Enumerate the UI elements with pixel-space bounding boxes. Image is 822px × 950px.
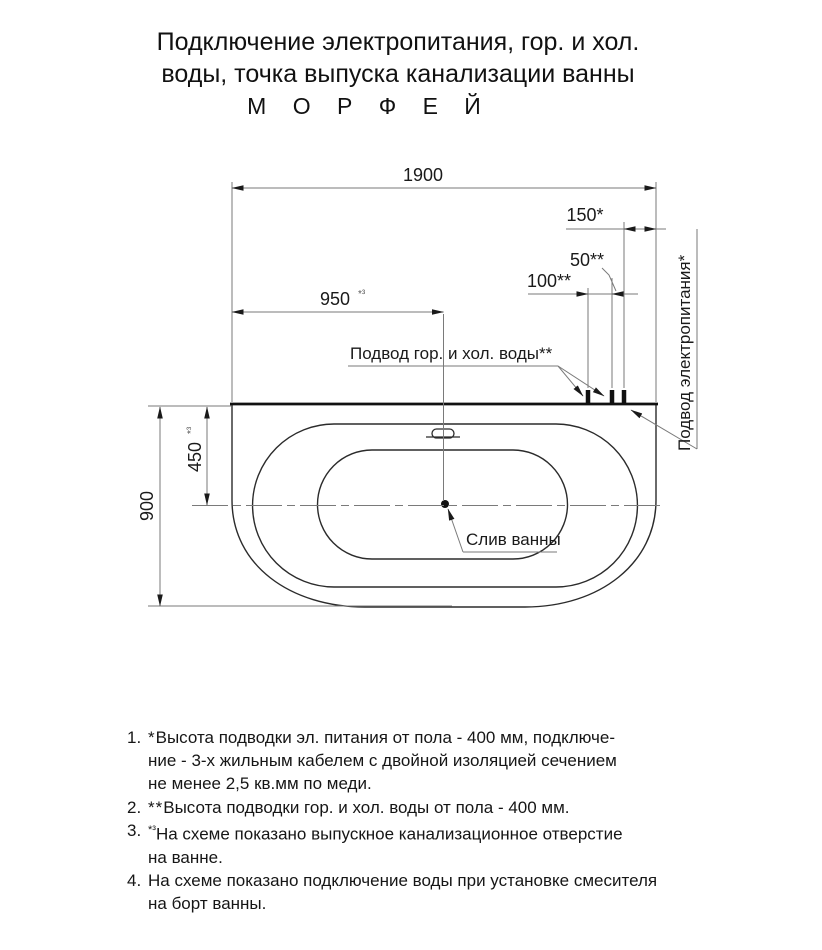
footnote-number: 1. <box>127 726 148 796</box>
drain-label: Слив ванны <box>466 530 561 549</box>
dim-1900-value: 1900 <box>403 165 443 185</box>
footnote-1: 1. *Высота подводки эл. питания от пола … <box>127 726 707 796</box>
drawing-page: Подключение электропитания, гор. и хол. … <box>0 0 822 950</box>
dim-1900: 1900 <box>232 165 656 188</box>
footnote-number: 3. <box>127 819 148 869</box>
dim-100-value: 100** <box>527 271 571 291</box>
extension-lines <box>148 182 656 606</box>
water-supply-label: Подвод гор. и хол. воды** <box>350 344 553 363</box>
footnote-marker: ** <box>148 798 163 817</box>
footnote-number: 2. <box>127 796 148 819</box>
dim-50-value: 50** <box>570 250 604 270</box>
dim-900: 900 <box>137 407 160 606</box>
footnotes: 1. *Высота подводки эл. питания от пола … <box>127 726 707 915</box>
footnote-marker: * <box>148 728 156 747</box>
center-lines <box>192 314 660 506</box>
footnote-4: 4. На схеме показано подключение воды пр… <box>127 869 707 915</box>
dim-100-50: 100** 50** <box>527 250 638 294</box>
dim-950: 950 *³ <box>232 289 444 312</box>
water-supply-callout: Подвод гор. и хол. воды** <box>348 344 604 396</box>
footnote-number: 4. <box>127 869 148 915</box>
footnote-text: Высота подводки эл. питания от пола - 40… <box>148 728 617 793</box>
dim-450: 450 *³ <box>185 407 207 505</box>
dim-950-footnote-mark: *³ <box>358 289 366 300</box>
dim-450-value: 450 <box>185 442 205 472</box>
power-supply-callout: Подвод электропитания* <box>631 229 697 451</box>
footnote-text: Высота подводки гор. и хол. воды от пола… <box>163 798 569 817</box>
power-supply-label: Подвод электропитания* <box>675 254 694 451</box>
footnote-3: 3. *³На схеме показано выпускное канализ… <box>127 819 707 869</box>
dim-450-footnote-mark: *³ <box>186 426 197 434</box>
footnote-text: На схеме показано подключение воды при у… <box>148 871 657 913</box>
footnote-text: На схеме показано выпускное канализацион… <box>148 824 623 866</box>
dim-150: 150* <box>566 205 666 229</box>
footnote-marker: *³ <box>148 824 156 836</box>
dim-900-value: 900 <box>137 491 157 521</box>
dim-950-value: 950 <box>320 289 350 309</box>
supply-ticks <box>588 390 624 403</box>
footnote-2: 2. **Высота подводки гор. и хол. воды от… <box>127 796 707 819</box>
drain-point <box>441 500 449 508</box>
drain-callout: Слив ванны <box>448 509 561 552</box>
dim-150-value: 150* <box>566 205 603 225</box>
